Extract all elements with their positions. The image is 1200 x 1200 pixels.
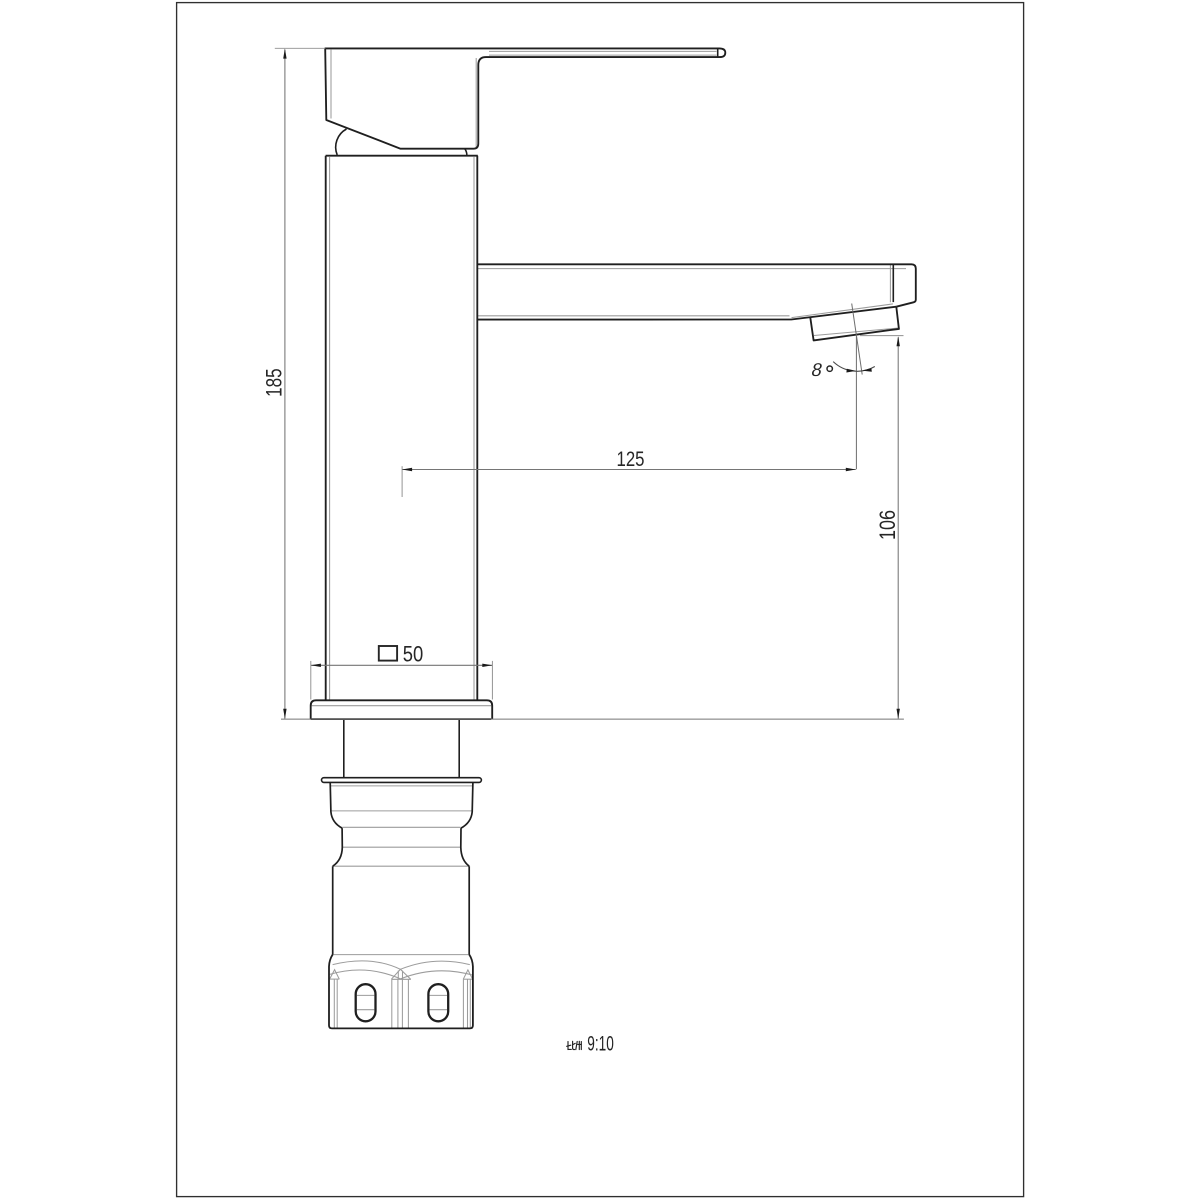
- svg-text:50: 50: [403, 641, 424, 666]
- svg-text:9:10: 9:10: [587, 1033, 614, 1056]
- svg-text:185: 185: [262, 368, 287, 397]
- svg-text:106: 106: [875, 510, 900, 540]
- svg-text:125: 125: [617, 447, 645, 471]
